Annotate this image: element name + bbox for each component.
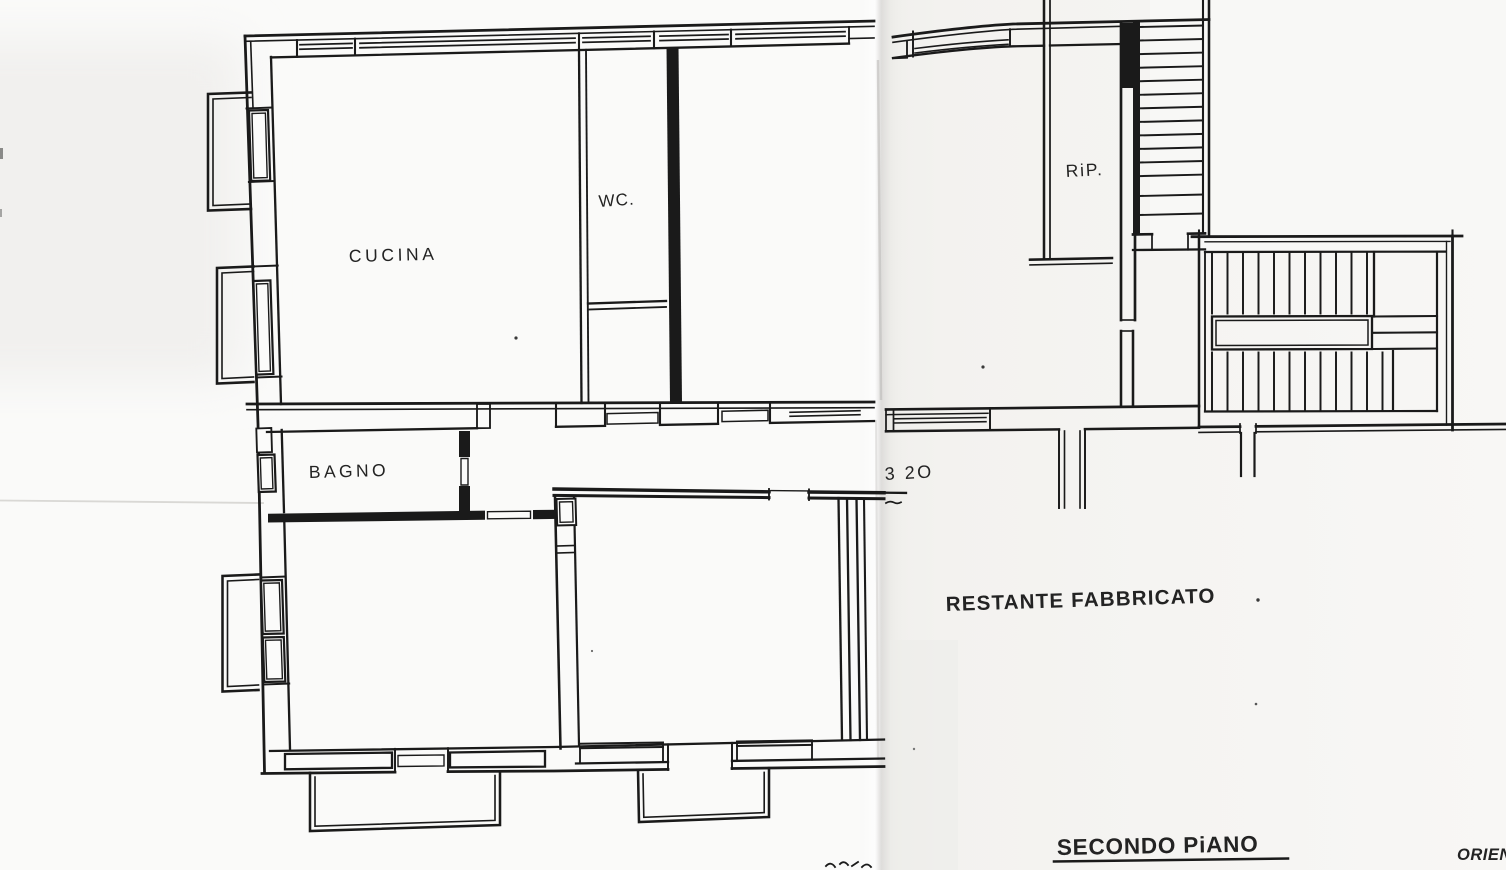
svg-text:WC.: WC. — [598, 190, 635, 211]
svg-text:SECONDO PiANO: SECONDO PiANO — [1057, 831, 1259, 860]
svg-text:3 2O: 3 2O — [884, 461, 934, 484]
svg-text:BAGNO: BAGNO — [309, 460, 390, 482]
svg-text:CUCINA: CUCINA — [349, 244, 438, 266]
svg-text:ORIENT: ORIENT — [1457, 846, 1506, 864]
svg-text:RiP.: RiP. — [1065, 159, 1104, 181]
